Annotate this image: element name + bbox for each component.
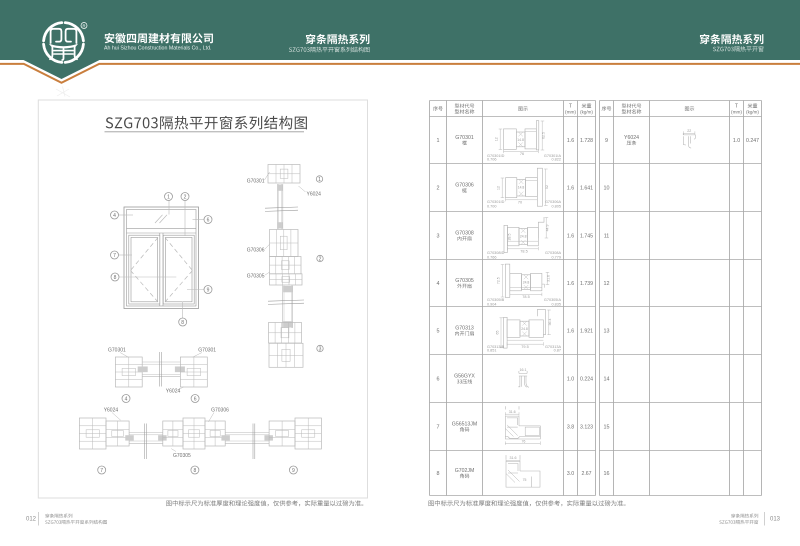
svg-text:70: 70 [518, 200, 522, 204]
svg-text:(mm): (mm) [731, 110, 742, 115]
svg-text:1.641: 1.641 [580, 185, 593, 191]
svg-text:9: 9 [207, 287, 210, 293]
svg-text:1.0: 1.0 [567, 376, 574, 382]
svg-text:(mm): (mm) [565, 110, 576, 115]
svg-text:Y6024: Y6024 [104, 408, 119, 414]
svg-text:9: 9 [605, 138, 608, 144]
svg-text:1.728: 1.728 [580, 138, 593, 144]
svg-text:3: 3 [437, 233, 440, 239]
svg-text:31.6: 31.6 [510, 456, 517, 460]
svg-text:2: 2 [319, 256, 322, 262]
svg-text:G70308: G70308 [455, 231, 474, 237]
svg-text:Y6024: Y6024 [166, 389, 181, 395]
svg-text:G56GYX: G56GYX [454, 374, 475, 380]
svg-text:78.5: 78.5 [520, 249, 527, 253]
svg-text:24.8: 24.8 [520, 234, 527, 238]
svg-text:G70306: G70306 [211, 408, 229, 414]
svg-text:3.0: 3.0 [567, 471, 574, 477]
svg-text:G702JM: G702JM [455, 468, 475, 474]
svg-text:G70305: G70305 [247, 274, 265, 280]
svg-text:G70301: G70301 [247, 179, 265, 185]
svg-text:24.8: 24.8 [521, 327, 528, 331]
svg-text:(kg/m): (kg/m) [746, 110, 759, 115]
svg-text:72.5: 72.5 [497, 277, 501, 284]
svg-text:0.700: 0.700 [487, 205, 497, 209]
svg-text:G70306: G70306 [455, 183, 474, 189]
svg-text:79.5: 79.5 [521, 345, 528, 349]
svg-text:0.835: 0.835 [551, 303, 561, 307]
svg-text:1.6: 1.6 [567, 138, 574, 144]
svg-text:1.739: 1.739 [580, 281, 593, 287]
svg-text:0.805: 0.805 [551, 205, 561, 209]
svg-text:8: 8 [194, 468, 197, 474]
svg-text:0.247: 0.247 [746, 138, 759, 144]
svg-text:0.904: 0.904 [487, 303, 497, 307]
svg-text:5: 5 [437, 328, 440, 334]
svg-text:28.5: 28.5 [507, 234, 511, 241]
svg-text:8: 8 [437, 471, 440, 477]
svg-text:10: 10 [604, 185, 610, 191]
svg-text:G70313: G70313 [455, 326, 474, 332]
svg-text:3.123: 3.123 [580, 424, 593, 430]
svg-text:1.921: 1.921 [580, 328, 593, 334]
svg-text:4: 4 [113, 213, 116, 219]
svg-text:R: R [82, 23, 85, 28]
svg-text:1.0: 1.0 [733, 138, 740, 144]
svg-text:12: 12 [495, 137, 499, 141]
svg-text:0.87: 0.87 [554, 349, 561, 353]
svg-text:6: 6 [207, 217, 210, 223]
svg-text:8: 8 [114, 275, 117, 281]
svg-text:56.4: 56.4 [548, 319, 552, 326]
svg-text:14.8: 14.8 [518, 186, 525, 190]
svg-text:6: 6 [437, 376, 440, 382]
svg-text:13: 13 [604, 328, 610, 334]
svg-text:7: 7 [113, 253, 116, 259]
svg-text:62.5: 62.5 [542, 132, 546, 139]
svg-text:1.6: 1.6 [567, 328, 574, 334]
svg-text:76: 76 [522, 439, 526, 443]
svg-text:76: 76 [520, 152, 524, 156]
svg-text:44.9: 44.9 [546, 225, 550, 232]
svg-text:0.851: 0.851 [487, 349, 497, 353]
svg-text:Y6024: Y6024 [624, 135, 639, 141]
svg-text:Y6024: Y6024 [307, 192, 322, 198]
svg-text:7: 7 [100, 468, 103, 474]
svg-text:15: 15 [604, 424, 610, 430]
svg-text:3: 3 [319, 346, 322, 352]
svg-text:22: 22 [687, 129, 691, 133]
svg-text:2: 2 [437, 185, 440, 191]
svg-text:012: 012 [26, 517, 37, 523]
svg-text:0.224: 0.224 [580, 376, 593, 382]
svg-text:0.822: 0.822 [551, 158, 561, 162]
svg-text:G70301: G70301 [108, 348, 126, 354]
svg-text:4: 4 [125, 396, 128, 402]
svg-text:14: 14 [604, 376, 610, 382]
svg-text:12: 12 [604, 281, 610, 287]
svg-text:G70301: G70301 [455, 135, 474, 141]
svg-text:31.6: 31.6 [509, 410, 516, 414]
svg-text:(kg/m): (kg/m) [580, 110, 593, 115]
svg-text:0.766: 0.766 [487, 256, 497, 260]
svg-text:16.1: 16.1 [520, 368, 527, 372]
svg-text:G70301: G70301 [198, 348, 216, 354]
svg-text:1.745: 1.745 [580, 233, 593, 239]
svg-text:Ah hui Sizhou Construction Mat: Ah hui Sizhou Construction Materials Co.… [104, 46, 212, 52]
svg-text:G56513JM: G56513JM [452, 422, 477, 428]
svg-text:11: 11 [604, 233, 610, 239]
svg-text:2: 2 [184, 194, 187, 200]
svg-text:7: 7 [437, 424, 440, 430]
svg-text:16: 16 [604, 471, 610, 477]
svg-text:78.5: 78.5 [522, 295, 529, 299]
svg-text:14.8: 14.8 [517, 138, 524, 142]
svg-text:G70305: G70305 [173, 453, 191, 459]
svg-text:0.779: 0.779 [551, 256, 561, 260]
svg-text:9: 9 [292, 468, 295, 474]
svg-text:013: 013 [770, 517, 781, 523]
svg-text:0.706: 0.706 [487, 158, 497, 162]
svg-text:52: 52 [545, 185, 549, 189]
svg-text:4: 4 [437, 281, 440, 287]
svg-text:6: 6 [194, 396, 197, 402]
svg-text:2.67: 2.67 [581, 471, 591, 477]
svg-text:12: 12 [497, 186, 501, 190]
svg-text:G70305: G70305 [455, 278, 474, 284]
svg-text:1: 1 [167, 194, 170, 200]
svg-text:G70306: G70306 [247, 248, 265, 254]
svg-text:8: 8 [181, 320, 184, 326]
svg-text:1.6: 1.6 [567, 185, 574, 191]
svg-text:3.8: 3.8 [567, 424, 574, 430]
svg-text:31.6: 31.6 [547, 275, 551, 282]
svg-text:24.8: 24.8 [523, 280, 530, 284]
svg-text:75: 75 [523, 478, 527, 482]
svg-text:1: 1 [437, 138, 440, 144]
svg-text:65: 65 [495, 331, 499, 335]
svg-text:1: 1 [318, 177, 321, 183]
svg-text:1.6: 1.6 [567, 281, 574, 287]
svg-text:1.6: 1.6 [567, 233, 574, 239]
